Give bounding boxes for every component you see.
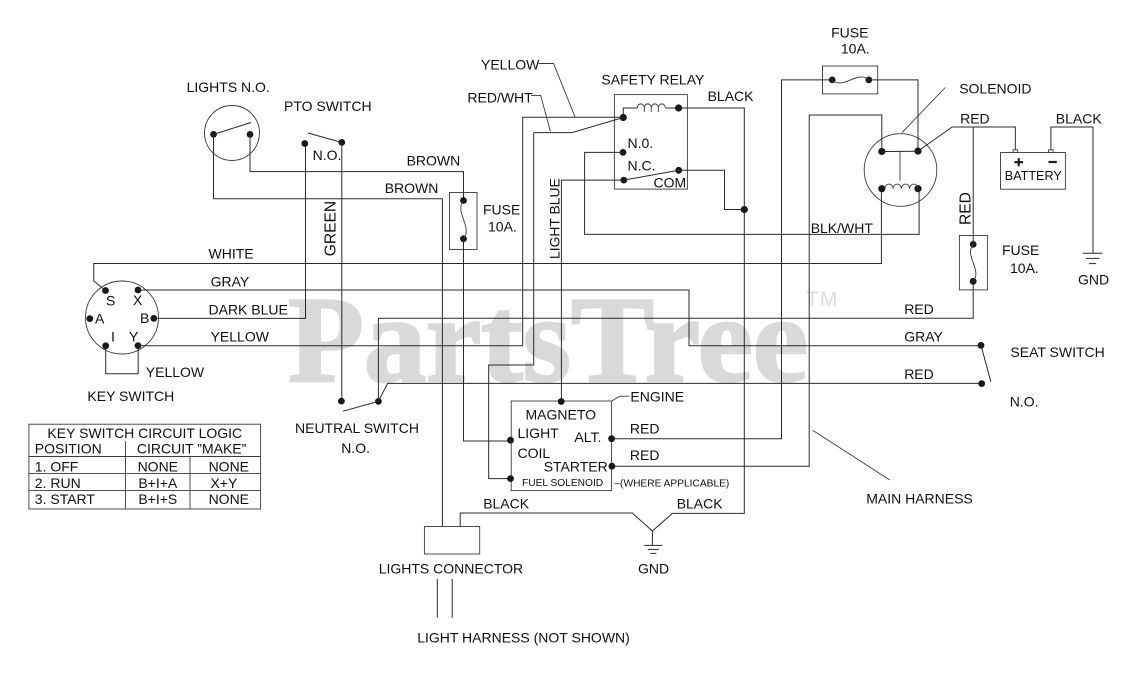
svg-text:LIGHTS CONNECTOR: LIGHTS CONNECTOR — [379, 561, 523, 577]
svg-text:MAGNETO: MAGNETO — [526, 407, 597, 423]
svg-text:NONE: NONE — [209, 491, 249, 507]
svg-text:KEY SWITCH: KEY SWITCH — [87, 388, 174, 404]
svg-text:KEY SWITCH CIRCUIT LOGIC: KEY SWITCH CIRCUIT LOGIC — [47, 425, 242, 441]
svg-text:N.0.: N.0. — [628, 135, 654, 151]
svg-text:RED: RED — [630, 421, 660, 437]
svg-text:BLK/WHT: BLK/WHT — [811, 220, 874, 236]
svg-text:RED: RED — [958, 192, 975, 225]
svg-text:10A.: 10A. — [841, 41, 870, 57]
svg-text:GREEN: GREEN — [322, 201, 339, 256]
svg-text:SOLENOID: SOLENOID — [959, 81, 1031, 97]
svg-text:RED: RED — [960, 111, 990, 127]
svg-text:X: X — [133, 292, 143, 308]
svg-text:1. OFF: 1. OFF — [35, 459, 79, 475]
svg-text:GRAY: GRAY — [211, 274, 250, 290]
svg-text:FUEL SOLENOID: FUEL SOLENOID — [522, 478, 603, 489]
svg-text:BROWN: BROWN — [385, 180, 439, 196]
svg-text:RED: RED — [630, 447, 660, 463]
svg-text:STARTER: STARTER — [544, 459, 608, 475]
svg-text:RED/WHT: RED/WHT — [467, 90, 533, 106]
svg-text:BATTERY: BATTERY — [1005, 169, 1063, 183]
svg-text:PartsTree: PartsTree — [288, 271, 808, 408]
svg-text:A: A — [95, 311, 105, 327]
svg-text:N.O.: N.O. — [341, 440, 370, 456]
svg-text:GND: GND — [1078, 272, 1109, 288]
svg-text:B+I+A: B+I+A — [138, 475, 178, 491]
svg-text:N.O.: N.O. — [313, 147, 342, 163]
svg-text:COM: COM — [654, 175, 687, 191]
svg-text:2. RUN: 2. RUN — [35, 475, 81, 491]
svg-text:WHITE: WHITE — [209, 246, 254, 262]
svg-text:BLACK: BLACK — [483, 496, 530, 512]
svg-text:B: B — [140, 310, 149, 326]
svg-text:FUSE: FUSE — [1002, 242, 1039, 258]
svg-text:FUSE: FUSE — [483, 202, 520, 218]
svg-text:YELLOW: YELLOW — [211, 329, 270, 345]
svg-text:LIGHTS N.O.: LIGHTS N.O. — [187, 79, 270, 95]
svg-text:SAFETY RELAY: SAFETY RELAY — [601, 72, 705, 88]
svg-text:10A.: 10A. — [488, 219, 517, 235]
svg-text:X+Y: X+Y — [210, 475, 238, 491]
svg-text:3. START: 3. START — [35, 491, 96, 507]
svg-text:–(WHERE APPLICABLE): –(WHERE APPLICABLE) — [614, 479, 729, 490]
svg-text:GRAY: GRAY — [904, 329, 943, 345]
svg-text:MAIN HARNESS: MAIN HARNESS — [866, 491, 973, 507]
svg-text:10A.: 10A. — [1010, 260, 1039, 276]
svg-text:YELLOW: YELLOW — [146, 364, 205, 380]
svg-text:PTO SWITCH: PTO SWITCH — [284, 98, 372, 114]
svg-text:DARK BLUE: DARK BLUE — [209, 302, 288, 318]
svg-text:CIRCUIT ”MAKE”: CIRCUIT ”MAKE” — [137, 441, 247, 457]
svg-text:GND: GND — [638, 561, 669, 577]
svg-text:BLACK: BLACK — [708, 88, 755, 104]
svg-text:NONE: NONE — [209, 459, 249, 475]
svg-text:RED: RED — [904, 301, 934, 317]
svg-text:BROWN: BROWN — [407, 153, 461, 169]
svg-text:BLACK: BLACK — [677, 496, 724, 512]
svg-text:B+I+S: B+I+S — [138, 491, 177, 507]
svg-text:N.O.: N.O. — [1010, 394, 1039, 410]
svg-text:LIGHT: LIGHT — [518, 425, 560, 441]
svg-text:SEAT SWITCH: SEAT SWITCH — [1010, 344, 1104, 360]
svg-text:LIGHT BLUE: LIGHT BLUE — [547, 178, 563, 259]
svg-text:NONE: NONE — [138, 459, 178, 475]
svg-text:N.C.: N.C. — [628, 158, 656, 174]
svg-text:RED: RED — [904, 366, 934, 382]
svg-text:FUSE: FUSE — [831, 25, 868, 41]
svg-text:YELLOW: YELLOW — [481, 57, 540, 73]
svg-text:Y: Y — [129, 329, 139, 345]
svg-text:ALT.: ALT. — [574, 429, 601, 445]
svg-text:I: I — [111, 329, 115, 345]
svg-text:S: S — [106, 293, 115, 309]
svg-text:TM: TM — [806, 288, 838, 311]
svg-text:POSITION: POSITION — [35, 441, 102, 457]
svg-text:BLACK: BLACK — [1056, 111, 1103, 127]
svg-text:NEUTRAL SWITCH: NEUTRAL SWITCH — [295, 420, 419, 436]
svg-text:LIGHT HARNESS (NOT SHOWN): LIGHT HARNESS (NOT SHOWN) — [417, 630, 630, 646]
svg-text:ENGINE: ENGINE — [630, 389, 684, 405]
